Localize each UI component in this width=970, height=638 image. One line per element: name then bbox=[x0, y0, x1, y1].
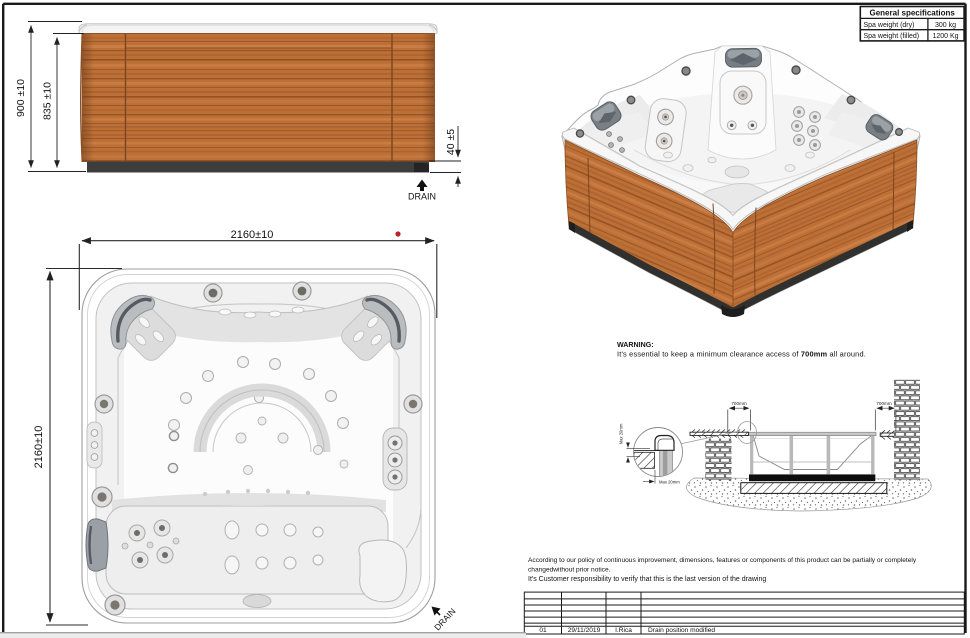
svg-text:2160±10: 2160±10 bbox=[231, 229, 274, 241]
svg-text:It's essential to keep a minim: It's essential to keep a minimum clearan… bbox=[617, 350, 866, 359]
svg-text:2160±10: 2160±10 bbox=[33, 426, 45, 469]
svg-text:Max 20mm: Max 20mm bbox=[619, 423, 624, 444]
svg-text:changedwithout prior notice.: changedwithout prior notice. bbox=[528, 567, 611, 574]
svg-text:Max 20mm: Max 20mm bbox=[659, 480, 680, 485]
svg-text:29/11/2019: 29/11/2019 bbox=[568, 627, 601, 634]
svg-text:700mm: 700mm bbox=[731, 401, 746, 406]
svg-text:40 ±5: 40 ±5 bbox=[445, 129, 457, 155]
svg-text:I.Rica: I.Rica bbox=[615, 627, 632, 634]
svg-text:835 ±10: 835 ±10 bbox=[41, 82, 53, 120]
svg-text:1200 Kg: 1200 Kg bbox=[932, 33, 958, 40]
svg-text:WARNING:: WARNING: bbox=[617, 341, 654, 349]
svg-text:900 ±10: 900 ±10 bbox=[15, 79, 27, 117]
svg-text:700mm: 700mm bbox=[876, 401, 891, 406]
svg-text:300 kg: 300 kg bbox=[935, 22, 956, 29]
svg-text:01: 01 bbox=[539, 627, 547, 634]
svg-text:General specifications: General specifications bbox=[870, 9, 956, 18]
svg-text:Drain position modified: Drain position modified bbox=[648, 627, 715, 634]
svg-text:Spa weight (filled): Spa weight (filled) bbox=[864, 33, 920, 40]
svg-text:DRAIN: DRAIN bbox=[408, 192, 436, 202]
svg-text:It's Customer responsibility t: It's Customer responsibility to verify t… bbox=[528, 576, 766, 583]
svg-text:According to our policy of con: According to our policy of continuous im… bbox=[528, 557, 917, 564]
svg-text:Spa weight (dry): Spa weight (dry) bbox=[864, 22, 915, 29]
